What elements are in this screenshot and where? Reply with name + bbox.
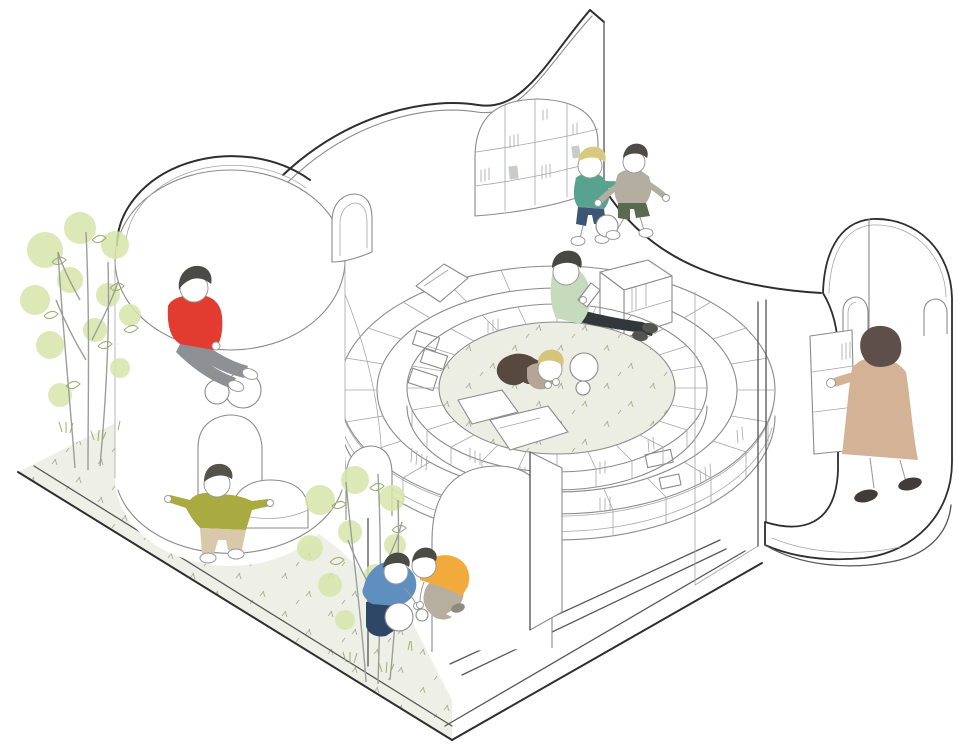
ball-large xyxy=(385,603,413,631)
drum-rim-thickness xyxy=(126,165,306,240)
wall-niche-arch xyxy=(332,194,372,262)
hand xyxy=(580,297,587,304)
hand xyxy=(165,496,172,503)
shoe xyxy=(200,553,216,563)
hand xyxy=(267,500,274,507)
hand xyxy=(827,379,836,388)
pit-ball-large xyxy=(570,353,598,381)
hand xyxy=(212,342,220,350)
corridor-wall-edge xyxy=(695,292,758,585)
hand xyxy=(595,200,602,207)
coat-sleeve xyxy=(836,376,856,382)
shoe xyxy=(606,231,620,240)
arch-bookshelf-book-gray xyxy=(508,166,518,180)
shoe xyxy=(571,237,585,246)
axonometric-illustration xyxy=(0,0,960,752)
illustration-canvas xyxy=(0,0,960,752)
hair-bun xyxy=(860,326,901,367)
shoe xyxy=(228,549,244,559)
pit-ball-small xyxy=(576,381,590,395)
hand xyxy=(417,602,424,609)
shoe xyxy=(639,229,653,238)
hand xyxy=(545,382,552,389)
hand xyxy=(663,195,670,202)
cut-wall-pair xyxy=(758,300,766,546)
arm xyxy=(420,582,424,602)
hand xyxy=(553,379,560,386)
drum-rim-top-edge xyxy=(117,156,310,245)
ball-small xyxy=(416,609,428,621)
shorts xyxy=(618,203,650,220)
divider-wall xyxy=(530,452,562,630)
